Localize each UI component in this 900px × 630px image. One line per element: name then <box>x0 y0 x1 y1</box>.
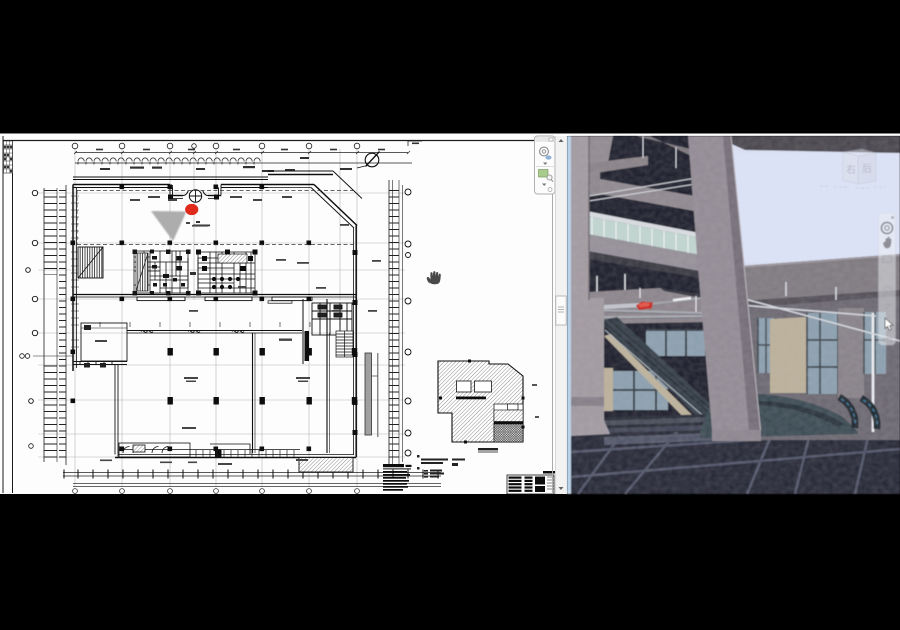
svg-text:后: 后 <box>862 163 872 175</box>
svg-text:右: 右 <box>846 163 856 176</box>
